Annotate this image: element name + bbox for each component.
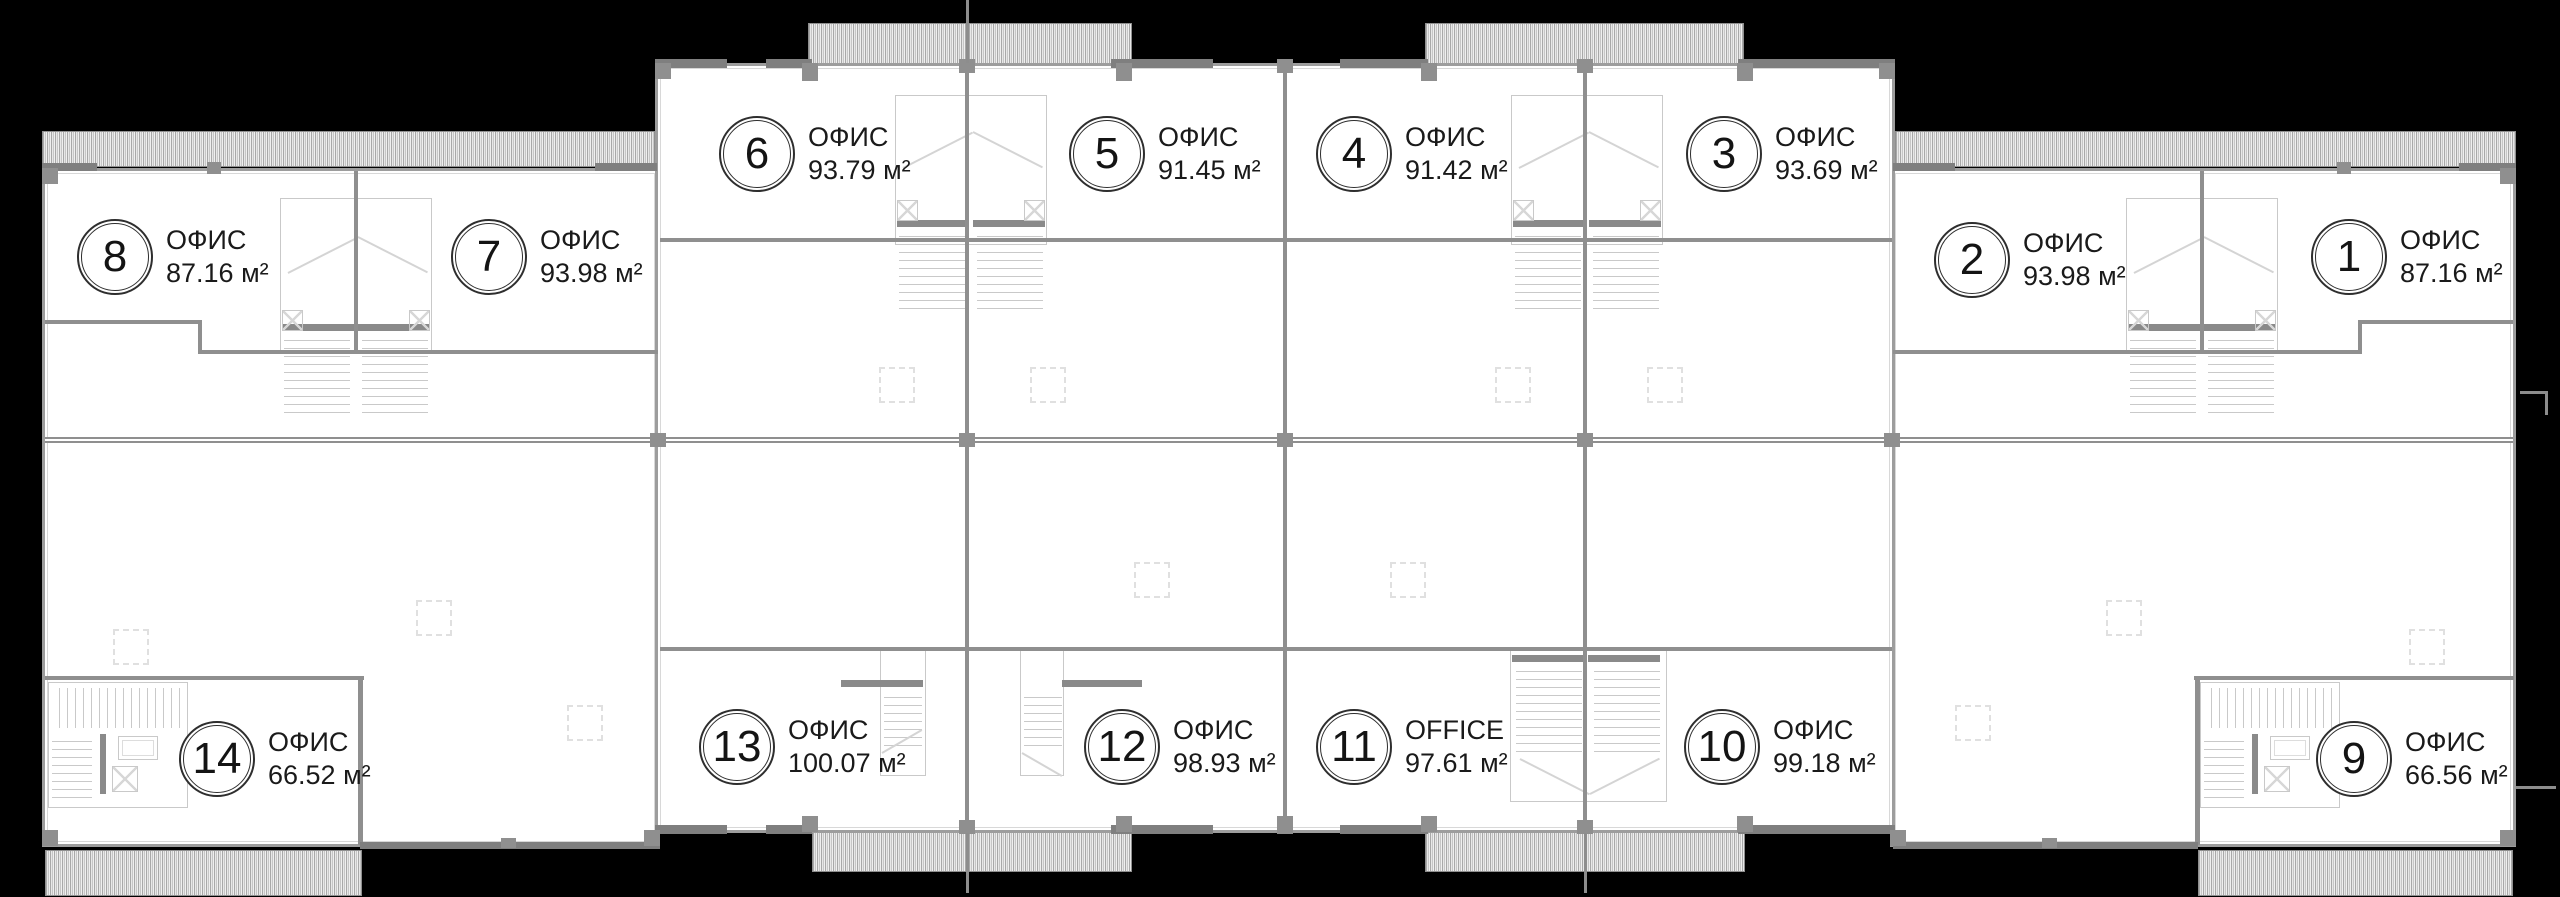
shaft-x-box <box>1640 200 1661 221</box>
stair-divider <box>2252 734 2258 794</box>
stair-landing-edge <box>841 680 923 687</box>
wall <box>45 676 364 680</box>
exterior-wall-segment <box>1823 825 1895 834</box>
unit-number-badge: 11 <box>1316 709 1392 785</box>
unit-marker[interactable]: 11 OFFICE 97.61 м² <box>1316 709 1508 785</box>
shaft-equipment-box <box>2270 736 2310 760</box>
unit-area: 93.98 м² <box>540 257 643 290</box>
unit-marker[interactable]: 6 ОФИС 93.79 м² <box>719 116 911 192</box>
unit-marker[interactable]: 2 ОФИС 93.98 м² <box>1934 222 2126 298</box>
unit-number: 9 <box>2342 737 2366 781</box>
unit-marker[interactable]: 3 ОФИС 93.69 м² <box>1686 116 1878 192</box>
stair-flight <box>2204 734 2244 804</box>
unit-label-block: ОФИС 87.16 м² <box>2400 224 2503 290</box>
column <box>1116 816 1132 832</box>
stair-landing-edge <box>1062 680 1142 687</box>
dashed-void-symbol <box>1495 367 1531 403</box>
unit-marker[interactable]: 8 ОФИС 87.16 м² <box>77 219 269 295</box>
unit-number-badge: 1 <box>2311 219 2387 295</box>
unit-number: 2 <box>1960 238 1984 282</box>
corner-block <box>42 168 58 184</box>
unit-label-block: ОФИС 91.45 м² <box>1158 121 1261 187</box>
stair-flight <box>1594 664 1660 752</box>
unit-number: 4 <box>1342 132 1366 176</box>
corner-block <box>1890 830 1906 846</box>
column <box>1116 63 1132 81</box>
unit-label-block: ОФИС 93.98 м² <box>540 224 643 290</box>
stair-divider <box>100 734 106 794</box>
shaft-x-box <box>1024 200 1045 221</box>
column <box>802 63 818 81</box>
wall <box>2200 171 2204 354</box>
corner-block <box>655 63 671 79</box>
wall <box>660 647 1892 651</box>
stair-landing-edge <box>1512 655 1584 662</box>
shaft-equipment-box <box>118 736 158 760</box>
unit-area: 98.93 м² <box>1173 747 1276 780</box>
wall <box>1583 66 1587 830</box>
unit-type-label: ОФИС <box>2023 227 2126 260</box>
shaft-x-box <box>897 200 918 221</box>
wall <box>2358 320 2362 354</box>
unit-number-badge: 8 <box>77 219 153 295</box>
column <box>501 838 516 848</box>
column <box>1884 433 1900 447</box>
unit-label-block: ОФИС 93.79 м² <box>808 121 911 187</box>
shaft-x-box <box>112 766 138 792</box>
unit-label-block: ОФИС 93.69 м² <box>1775 121 1878 187</box>
unit-area: 99.18 м² <box>1773 747 1876 780</box>
column <box>1577 59 1593 73</box>
column <box>802 816 818 832</box>
wall <box>198 320 202 354</box>
unit-type-label: ОФИС <box>788 714 906 747</box>
stair-flight <box>52 688 180 728</box>
exterior-wall-segment <box>595 163 657 171</box>
column <box>1577 820 1593 834</box>
unit-label-block: ОФИС 66.56 м² <box>2405 726 2508 792</box>
unit-area: 87.16 м² <box>166 257 269 290</box>
stair-landing-edge <box>1588 655 1660 662</box>
column <box>1277 816 1293 834</box>
stair-landing-edge <box>1513 220 1585 227</box>
dashed-void-symbol <box>2409 629 2445 665</box>
unit-type-label: ОФИС <box>2400 224 2503 257</box>
dashed-void-symbol <box>113 629 149 665</box>
axis-line <box>1584 833 1587 893</box>
unit-area: 93.69 м² <box>1775 154 1878 187</box>
dashed-void-symbol <box>879 367 915 403</box>
unit-label-block: ОФИС 93.98 м² <box>2023 227 2126 293</box>
stair-flight <box>52 734 92 804</box>
unit-area: 66.56 м² <box>2405 759 2508 792</box>
shaft-x-box <box>409 310 430 331</box>
facade-hatch-top-canopy-1 <box>808 23 1132 64</box>
shaft-x-box <box>1513 200 1534 221</box>
stair-flight <box>2208 333 2274 419</box>
column <box>1421 63 1437 81</box>
dashed-void-symbol <box>416 600 452 636</box>
axis-tick <box>2516 786 2556 789</box>
dashed-void-symbol <box>1390 562 1426 598</box>
unit-type-label: ОФИС <box>1773 714 1876 747</box>
unit-number: 7 <box>477 235 501 279</box>
wall <box>1283 66 1287 830</box>
wall <box>198 350 658 354</box>
dashed-void-symbol <box>1030 367 1066 403</box>
unit-type-label: ОФИС <box>1158 121 1261 154</box>
wall <box>354 171 358 354</box>
unit-label-block: ОФИС 66.52 м² <box>268 726 371 792</box>
unit-marker[interactable]: 7 ОФИС 93.98 м² <box>451 219 643 295</box>
unit-area: 91.45 м² <box>1158 154 1261 187</box>
corner-block <box>2500 830 2516 846</box>
unit-type-label: OFFICE <box>1405 714 1508 747</box>
unit-label-block: ОФИС 98.93 м² <box>1173 714 1276 780</box>
exterior-wall-segment <box>1893 163 1955 171</box>
stair-flight <box>362 333 428 419</box>
wall <box>2195 678 2200 845</box>
unit-label-block: ОФИС 87.16 м² <box>166 224 269 290</box>
column <box>1421 816 1437 832</box>
unit-label-block: ОФИС 100.07 м² <box>788 714 906 780</box>
unit-number-badge: 6 <box>719 116 795 192</box>
dashed-void-symbol <box>1647 367 1683 403</box>
unit-marker[interactable]: 12 ОФИС 98.93 м² <box>1084 709 1276 785</box>
unit-marker[interactable]: 5 ОФИС 91.45 м² <box>1069 116 1261 192</box>
unit-number: 6 <box>745 132 769 176</box>
stair-flight <box>1516 664 1582 752</box>
exterior-wall-segment <box>1340 825 1428 834</box>
stair-flight <box>1024 690 1062 750</box>
unit-marker[interactable]: 9 ОФИС 66.56 м² <box>2316 721 2508 797</box>
unit-number: 1 <box>2337 235 2361 279</box>
shaft-x-box <box>2264 766 2290 792</box>
exterior-wall-segment <box>655 825 727 834</box>
facade-hatch-top-right-wing <box>1895 131 2516 167</box>
column <box>650 433 666 447</box>
column <box>959 820 975 834</box>
unit-area: 93.98 м² <box>2023 260 2126 293</box>
dashed-void-symbol <box>1955 705 1991 741</box>
unit-number-badge: 13 <box>699 709 775 785</box>
dashed-void-symbol <box>1134 562 1170 598</box>
axis-line <box>966 833 969 893</box>
stair-landing-edge <box>897 220 969 227</box>
unit-label-block: OFFICE 97.61 м² <box>1405 714 1508 780</box>
wall <box>965 66 969 830</box>
column <box>959 433 975 447</box>
shaft-x-box <box>282 310 303 331</box>
wall <box>2194 676 2514 680</box>
unit-number-badge: 5 <box>1069 116 1145 192</box>
unit-number: 5 <box>1095 132 1119 176</box>
unit-marker[interactable]: 10 ОФИС 99.18 м² <box>1684 709 1876 785</box>
unit-marker[interactable]: 14 ОФИС 66.52 м² <box>179 721 371 797</box>
unit-label-block: ОФИС 91.42 м² <box>1405 121 1508 187</box>
column <box>1277 59 1293 73</box>
door-mark <box>2520 391 2548 394</box>
corner-block <box>42 830 58 846</box>
unit-marker[interactable]: 13 ОФИС 100.07 м² <box>699 709 906 785</box>
corner-block <box>644 830 660 846</box>
unit-marker[interactable]: 4 ОФИС 91.42 м² <box>1316 116 1508 192</box>
column <box>1737 63 1753 81</box>
facade-hatch-bottom-canopy-1 <box>812 832 1132 872</box>
unit-number-badge: 3 <box>1686 116 1762 192</box>
unit-type-label: ОФИС <box>1173 714 1276 747</box>
unit-number-badge: 7 <box>451 219 527 295</box>
column <box>207 162 221 174</box>
unit-type-label: ОФИС <box>1775 121 1878 154</box>
facade-hatch-bottom-right-wing <box>2198 850 2513 896</box>
facade-hatch-top-left-wing <box>42 131 655 167</box>
unit-number-badge: 10 <box>1684 709 1760 785</box>
wall <box>2360 320 2513 324</box>
unit-type-label: ОФИС <box>540 224 643 257</box>
facade-hatch-bottom-left-wing <box>45 850 362 896</box>
wall <box>660 238 1892 242</box>
unit-number: 13 <box>713 725 762 769</box>
unit-number-badge: 2 <box>1934 222 2010 298</box>
unit-number: 10 <box>1698 725 1747 769</box>
corner-block <box>2500 168 2516 184</box>
unit-type-label: ОФИС <box>1405 121 1508 154</box>
unit-area: 66.52 м² <box>268 759 371 792</box>
unit-type-label: ОФИС <box>808 121 911 154</box>
dashed-void-symbol <box>567 705 603 741</box>
stair-landing-edge <box>1589 220 1661 227</box>
shaft-x-box <box>2128 310 2149 331</box>
unit-area: 87.16 м² <box>2400 257 2503 290</box>
unit-number: 14 <box>193 737 242 781</box>
exterior-wall-segment <box>1340 59 1428 68</box>
column <box>1737 816 1753 832</box>
unit-number-badge: 14 <box>179 721 255 797</box>
dashed-void-symbol <box>2106 600 2142 636</box>
unit-area: 93.79 м² <box>808 154 911 187</box>
column <box>2337 162 2351 174</box>
unit-type-label: ОФИС <box>2405 726 2508 759</box>
column <box>1277 433 1293 447</box>
stair-flight <box>284 333 350 419</box>
door-mark <box>2545 391 2548 415</box>
stair-flight <box>2130 333 2196 419</box>
corner-block <box>1879 63 1895 79</box>
floor-plan: 1 ОФИС 87.16 м² 2 ОФИС 93.98 м² 3 ОФИС 9 <box>0 0 2560 897</box>
axis-line <box>966 0 969 63</box>
unit-number: 11 <box>1331 725 1377 769</box>
unit-number-badge: 4 <box>1316 116 1392 192</box>
column <box>2042 838 2057 848</box>
unit-area: 91.42 м² <box>1405 154 1508 187</box>
stair-flight <box>2204 688 2332 728</box>
stair-landing-edge <box>973 220 1045 227</box>
shaft-x-box <box>2255 310 2276 331</box>
facade-hatch-top-canopy-2 <box>1425 23 1744 64</box>
unit-marker[interactable]: 1 ОФИС 87.16 м² <box>2311 219 2503 295</box>
unit-number: 3 <box>1712 132 1736 176</box>
unit-number: 12 <box>1098 725 1147 769</box>
unit-number-badge: 12 <box>1084 709 1160 785</box>
wall <box>45 320 202 324</box>
wall <box>1893 350 2360 354</box>
unit-area: 97.61 м² <box>1405 747 1508 780</box>
unit-label-block: ОФИС 99.18 м² <box>1773 714 1876 780</box>
unit-area: 100.07 м² <box>788 747 906 780</box>
column <box>1577 433 1593 447</box>
unit-type-label: ОФИС <box>268 726 371 759</box>
unit-number-badge: 9 <box>2316 721 2392 797</box>
unit-type-label: ОФИС <box>166 224 269 257</box>
unit-number: 8 <box>103 235 127 279</box>
